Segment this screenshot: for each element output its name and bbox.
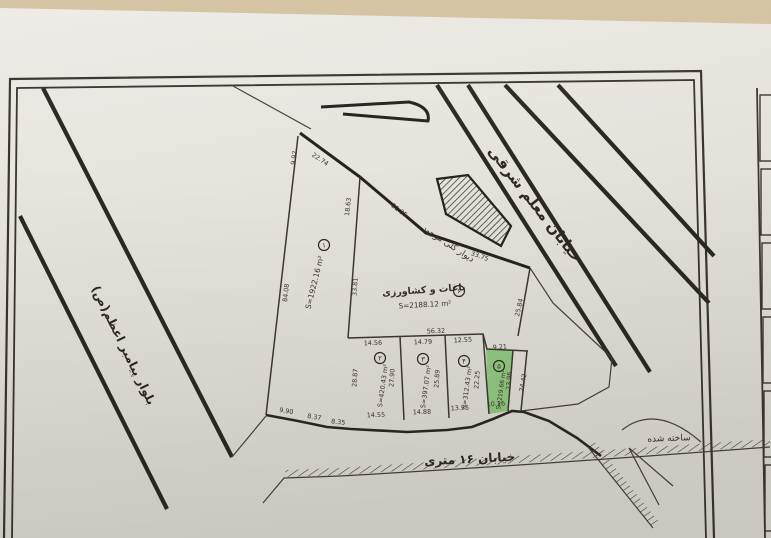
dimension-label: 22.25	[472, 370, 481, 389]
dimension-label: 8.35	[331, 417, 346, 426]
parcel-number: ۱	[322, 242, 326, 250]
parcel-number: ۴	[462, 358, 466, 366]
built-note: ساخته شده	[647, 433, 691, 445]
survey-plan-photo: خیابان معلم شرقی بلوار پیامبر اعظم(ص) خی…	[0, 0, 771, 538]
parcel-number: ۲	[378, 355, 382, 363]
dimension-label: 14.79	[414, 338, 433, 347]
parcel-number: ۳	[421, 356, 425, 364]
dimension-label: 14.55	[367, 411, 386, 420]
dimension-label: 9.21	[492, 343, 507, 352]
dimension-label: 28.87	[350, 368, 359, 387]
dimension-label: 25.89	[432, 369, 441, 388]
dimension-label: 56.32	[427, 327, 446, 336]
parcel-number: ۵	[497, 363, 501, 371]
site-plan-svg: خیابان معلم شرقی بلوار پیامبر اعظم(ص) خی…	[0, 0, 771, 538]
dimension-label: 14.56	[364, 339, 383, 348]
dimension-label: 12.55	[454, 336, 473, 345]
dimension-label: 33.81	[350, 277, 359, 296]
parcel-number: ۶	[457, 288, 461, 296]
